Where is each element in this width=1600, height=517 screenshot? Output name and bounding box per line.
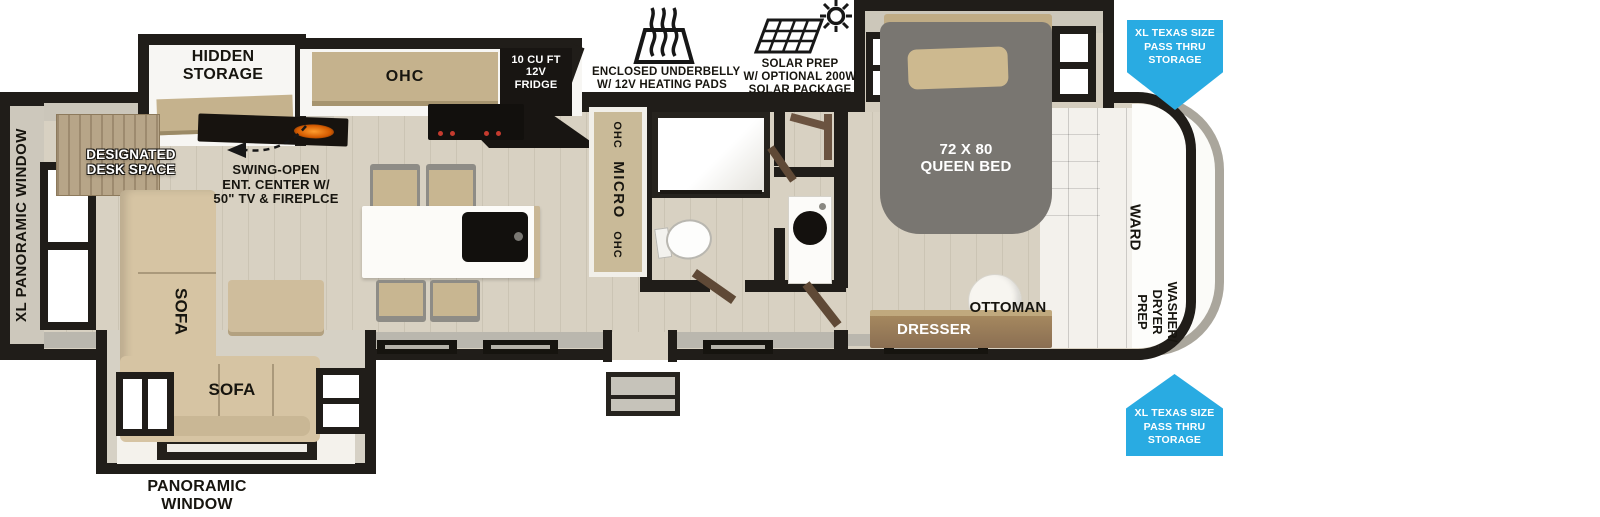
pass-thru-arrow-bottom: XL TEXAS SIZE PASS THRU STORAGE	[1126, 374, 1223, 456]
rv-floorplan-diagram: XL PANORAMIC WINDOW HIDDEN STORAGE OHC 1…	[0, 0, 1600, 517]
underbelly-line2: W/ 12V HEATING PADS	[592, 79, 732, 92]
kitchen-ohc-label: OHC	[340, 68, 470, 86]
wd-line2: DRYER	[1149, 272, 1164, 352]
queen-bed	[880, 22, 1052, 234]
fridge-line2: 12V	[500, 66, 572, 78]
ward-label: WARD	[1126, 192, 1143, 262]
wd-line1: WASHER/	[1164, 272, 1179, 352]
ottoman-label: OTTOMAN	[948, 300, 1068, 317]
window-mullion	[323, 398, 359, 404]
chair	[376, 280, 426, 322]
bedroom-divider-wall-lower	[834, 330, 848, 352]
ent-center-label: SWING-OPEN ENT. CENTER W/ 50" TV & FIREP…	[195, 163, 357, 207]
panoramic-line2: WINDOW	[117, 496, 277, 514]
entry-steps	[606, 372, 680, 416]
bottom-window	[377, 340, 457, 354]
queen-bed-label: 72 X 80 QUEEN BED	[886, 142, 1046, 176]
vanity-sink	[793, 211, 827, 245]
burner-knob	[496, 131, 501, 136]
burner-knob	[484, 131, 489, 136]
hidden-storage-line1: HIDDEN	[158, 48, 288, 66]
entry-jamb-left	[603, 330, 612, 362]
coffee-table	[228, 280, 324, 332]
fridge-line1: 10 CU FT	[500, 54, 572, 66]
heated-underbelly-icon	[620, 4, 708, 66]
pass-thru-bottom-label: XL TEXAS SIZE PASS THRU STORAGE	[1126, 374, 1223, 448]
pass-thru-top-line3: STORAGE	[1127, 54, 1223, 68]
ent-center-line1: SWING-OPEN	[195, 163, 357, 178]
bath-wall-inner-b	[774, 228, 785, 292]
window-glass	[711, 345, 765, 349]
chair	[430, 280, 480, 322]
swing-arrow	[224, 118, 314, 168]
bath-vanity	[788, 196, 832, 284]
window-mullion	[48, 242, 88, 250]
washer-dryer-label: WASHER/ DRYER PREP	[1131, 272, 1179, 352]
micro-ohc-label: OHC MICRO OHC	[609, 115, 627, 265]
wd-line3: PREP	[1134, 272, 1149, 352]
bed-pillow	[907, 46, 1008, 89]
dresser-label: DRESSER	[874, 322, 994, 339]
pass-thru-bottom-line2: PASS THRU	[1126, 421, 1223, 435]
bath-shelf-side	[824, 114, 832, 160]
pass-thru-top-label: XL TEXAS SIZE PASS THRU STORAGE	[1127, 20, 1223, 68]
window-glass	[491, 345, 550, 349]
desk-line1: DESIGNATED	[66, 147, 196, 162]
ent-center-line2: ENT. CENTER W/	[195, 178, 357, 193]
bedroom-divider-wall-upper	[834, 112, 848, 288]
chair	[370, 164, 420, 210]
step-divider	[611, 395, 675, 399]
slide-window-left	[116, 372, 174, 436]
entry-opening	[612, 332, 668, 360]
hidden-storage-line2: STORAGE	[158, 66, 288, 84]
shower-glass	[660, 190, 762, 194]
bed-line2: QUEEN BED	[886, 159, 1046, 176]
bottom-window	[483, 340, 558, 354]
solar-line2: W/ OPTIONAL 200W	[725, 71, 875, 84]
panoramic-window-label: PANORAMIC WINDOW	[117, 478, 277, 514]
underbelly-label: ENCLOSED UNDERBELLY W/ 12V HEATING PADS	[592, 66, 732, 92]
bedroom-window-right	[1052, 26, 1096, 102]
burner-knob	[438, 131, 443, 136]
window-glass	[385, 345, 449, 349]
ohc-top-label: OHC	[611, 121, 623, 148]
top-wall-mid	[575, 98, 867, 112]
cooktop	[428, 104, 524, 140]
burner-knob	[450, 131, 455, 136]
bed-line1: 72 X 80	[886, 142, 1046, 159]
pass-thru-bottom-line3: STORAGE	[1126, 434, 1223, 448]
entry-jamb-right	[668, 330, 677, 362]
sofa-seam	[138, 272, 216, 274]
sofa-horizontal-label: SOFA	[187, 380, 277, 399]
fridge-label: 10 CU FT 12V FRIDGE	[500, 54, 572, 91]
pass-thru-top-line2: PASS THRU	[1127, 41, 1223, 55]
solar-prep-icon	[748, 0, 852, 60]
pass-thru-bottom-line1: XL TEXAS SIZE	[1126, 407, 1223, 421]
fridge-line3: FRIDGE	[500, 79, 572, 91]
bottom-window	[703, 340, 773, 354]
micro-label: MICRO	[610, 161, 627, 219]
window-mullion	[142, 379, 148, 429]
xl-panoramic-window-label: XL PANORAMIC WINDOW	[14, 100, 34, 350]
desk-line2: DESK SPACE	[66, 162, 196, 177]
slide-window-right	[316, 368, 366, 434]
vanity-faucet	[819, 203, 826, 210]
solar-line3: SOLAR PACKAGE	[725, 84, 875, 97]
hidden-storage-label: HIDDEN STORAGE	[158, 48, 288, 84]
solar-line1: SOLAR PREP	[725, 58, 875, 71]
sofa-vertical-label: SOFA	[171, 282, 190, 342]
island-faucet	[514, 232, 523, 241]
window-mullion	[1060, 62, 1088, 69]
panoramic-line1: PANORAMIC	[117, 478, 277, 496]
designated-desk-label: DESIGNATED DESK SPACE	[66, 147, 196, 177]
kitchen-island	[362, 206, 540, 278]
pass-thru-top-line1: XL TEXAS SIZE	[1127, 27, 1223, 41]
chair	[426, 164, 476, 210]
ohc-bottom-label: OHC	[611, 231, 623, 258]
solar-label: SOLAR PREP W/ OPTIONAL 200W SOLAR PACKAG…	[725, 58, 875, 97]
underbelly-line1: ENCLOSED UNDERBELLY	[592, 66, 732, 79]
mat-center	[167, 444, 307, 452]
toilet	[653, 214, 717, 266]
shower	[652, 112, 770, 198]
ent-center-line3: 50" TV & FIREPLCE	[195, 192, 357, 207]
